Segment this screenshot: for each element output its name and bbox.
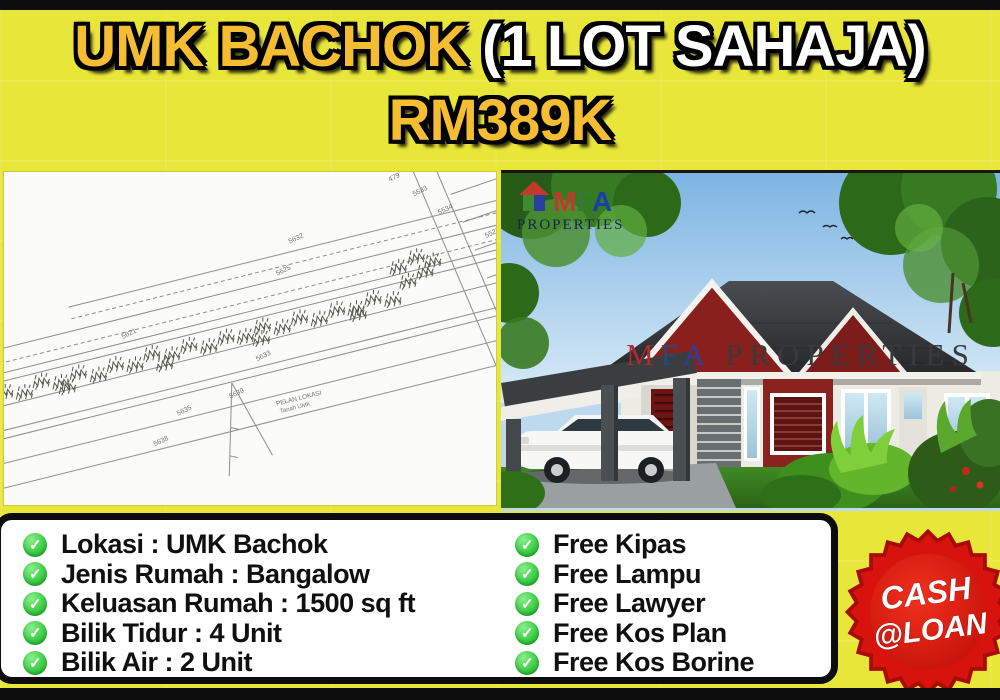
logo-house-body-icon <box>523 195 534 211</box>
detail-label: Free Kipas <box>553 529 686 560</box>
details-panel: ✓Lokasi : UMK Bachok ✓Jenis Rumah : Bang… <box>0 513 838 684</box>
list-item: ✓Free Lawyer <box>515 589 754 619</box>
cash-loan-badge: CASH @LOAN <box>842 524 1000 700</box>
detail-label: Lokasi : UMK Bachok <box>61 529 328 560</box>
headline-location: UMK BACHOK <box>74 14 482 79</box>
list-item: ✓Free Kos Plan <box>515 619 754 649</box>
bottom-border <box>0 688 1000 700</box>
top-border <box>0 0 1000 10</box>
check-icon: ✓ <box>515 651 539 675</box>
watermark-m: M <box>626 337 661 372</box>
check-icon: ✓ <box>23 621 47 645</box>
check-icon: ✓ <box>23 651 47 675</box>
detail-label: Jenis Rumah : Bangalow <box>61 559 370 590</box>
list-item: ✓Free Kipas <box>515 530 754 560</box>
check-icon: ✓ <box>23 533 47 557</box>
detail-label: Bilik Air : 2 Unit <box>61 647 252 678</box>
detail-label: Keluasan Rumah : 1500 sq ft <box>61 588 415 619</box>
siding-panel <box>697 379 741 478</box>
logo-f: F <box>576 186 593 217</box>
detail-label: Free Kos Borine <box>553 647 754 678</box>
check-icon: ✓ <box>23 562 47 586</box>
watermark-f: F <box>661 337 683 372</box>
list-item: ✓Bilik Tidur : 4 Unit <box>23 619 415 649</box>
details-list-right: ✓Free Kipas ✓Free Lampu ✓Free Lawyer ✓Fr… <box>515 530 754 678</box>
mfa-logo: MFA PROPERTIES <box>517 181 624 233</box>
plan-paper <box>4 172 496 505</box>
site-plan-drawing: 5621 5625 5632 5633 5639 5635 5638 479 5… <box>4 172 496 505</box>
logo-mfa-text: MFA <box>553 186 612 217</box>
list-item: ✓Free Kos Borine <box>515 648 754 678</box>
list-item: ✓Jenis Rumah : Bangalow <box>23 560 415 590</box>
logo-m: M <box>553 186 576 217</box>
flyer-root: UMK BACHOK (1 LOT SAHAJA) RM389K <box>0 0 1000 700</box>
headline-lot: (1 LOT SAHAJA) <box>482 14 926 79</box>
check-icon: ✓ <box>515 592 539 616</box>
house-photo: MFA PROPERTIES MFA PROPERTIES <box>501 170 1000 511</box>
watermark-rest: PROPERTIES <box>710 337 975 372</box>
detail-label: Free Kos Plan <box>553 618 727 649</box>
headline-price: RM389K <box>0 92 1000 150</box>
house-rendering: MFA PROPERTIES MFA PROPERTIES <box>501 173 1000 508</box>
list-item: ✓Bilik Air : 2 Unit <box>23 648 415 678</box>
headline-title: UMK BACHOK (1 LOT SAHAJA) <box>0 18 1000 76</box>
watermark-text: MFA PROPERTIES <box>626 337 976 372</box>
detail-label: Bilik Tidur : 4 Unit <box>61 618 282 649</box>
logo-sub-text: PROPERTIES <box>517 217 624 233</box>
check-icon: ✓ <box>23 592 47 616</box>
check-icon: ✓ <box>515 621 539 645</box>
list-item: ✓Lokasi : UMK Bachok <box>23 530 415 560</box>
logo-a: A <box>592 186 612 217</box>
check-icon: ✓ <box>515 533 539 557</box>
list-item: ✓Free Lampu <box>515 560 754 590</box>
detail-label: Free Lampu <box>553 559 701 590</box>
check-icon: ✓ <box>515 562 539 586</box>
details-list-left: ✓Lokasi : UMK Bachok ✓Jenis Rumah : Bang… <box>23 530 415 678</box>
list-item: ✓Keluasan Rumah : 1500 sq ft <box>23 589 415 619</box>
detail-label: Free Lawyer <box>553 588 705 619</box>
site-plan-panel: 5621 5625 5632 5633 5639 5635 5638 479 5… <box>4 172 496 505</box>
watermark-a: A <box>683 337 711 372</box>
